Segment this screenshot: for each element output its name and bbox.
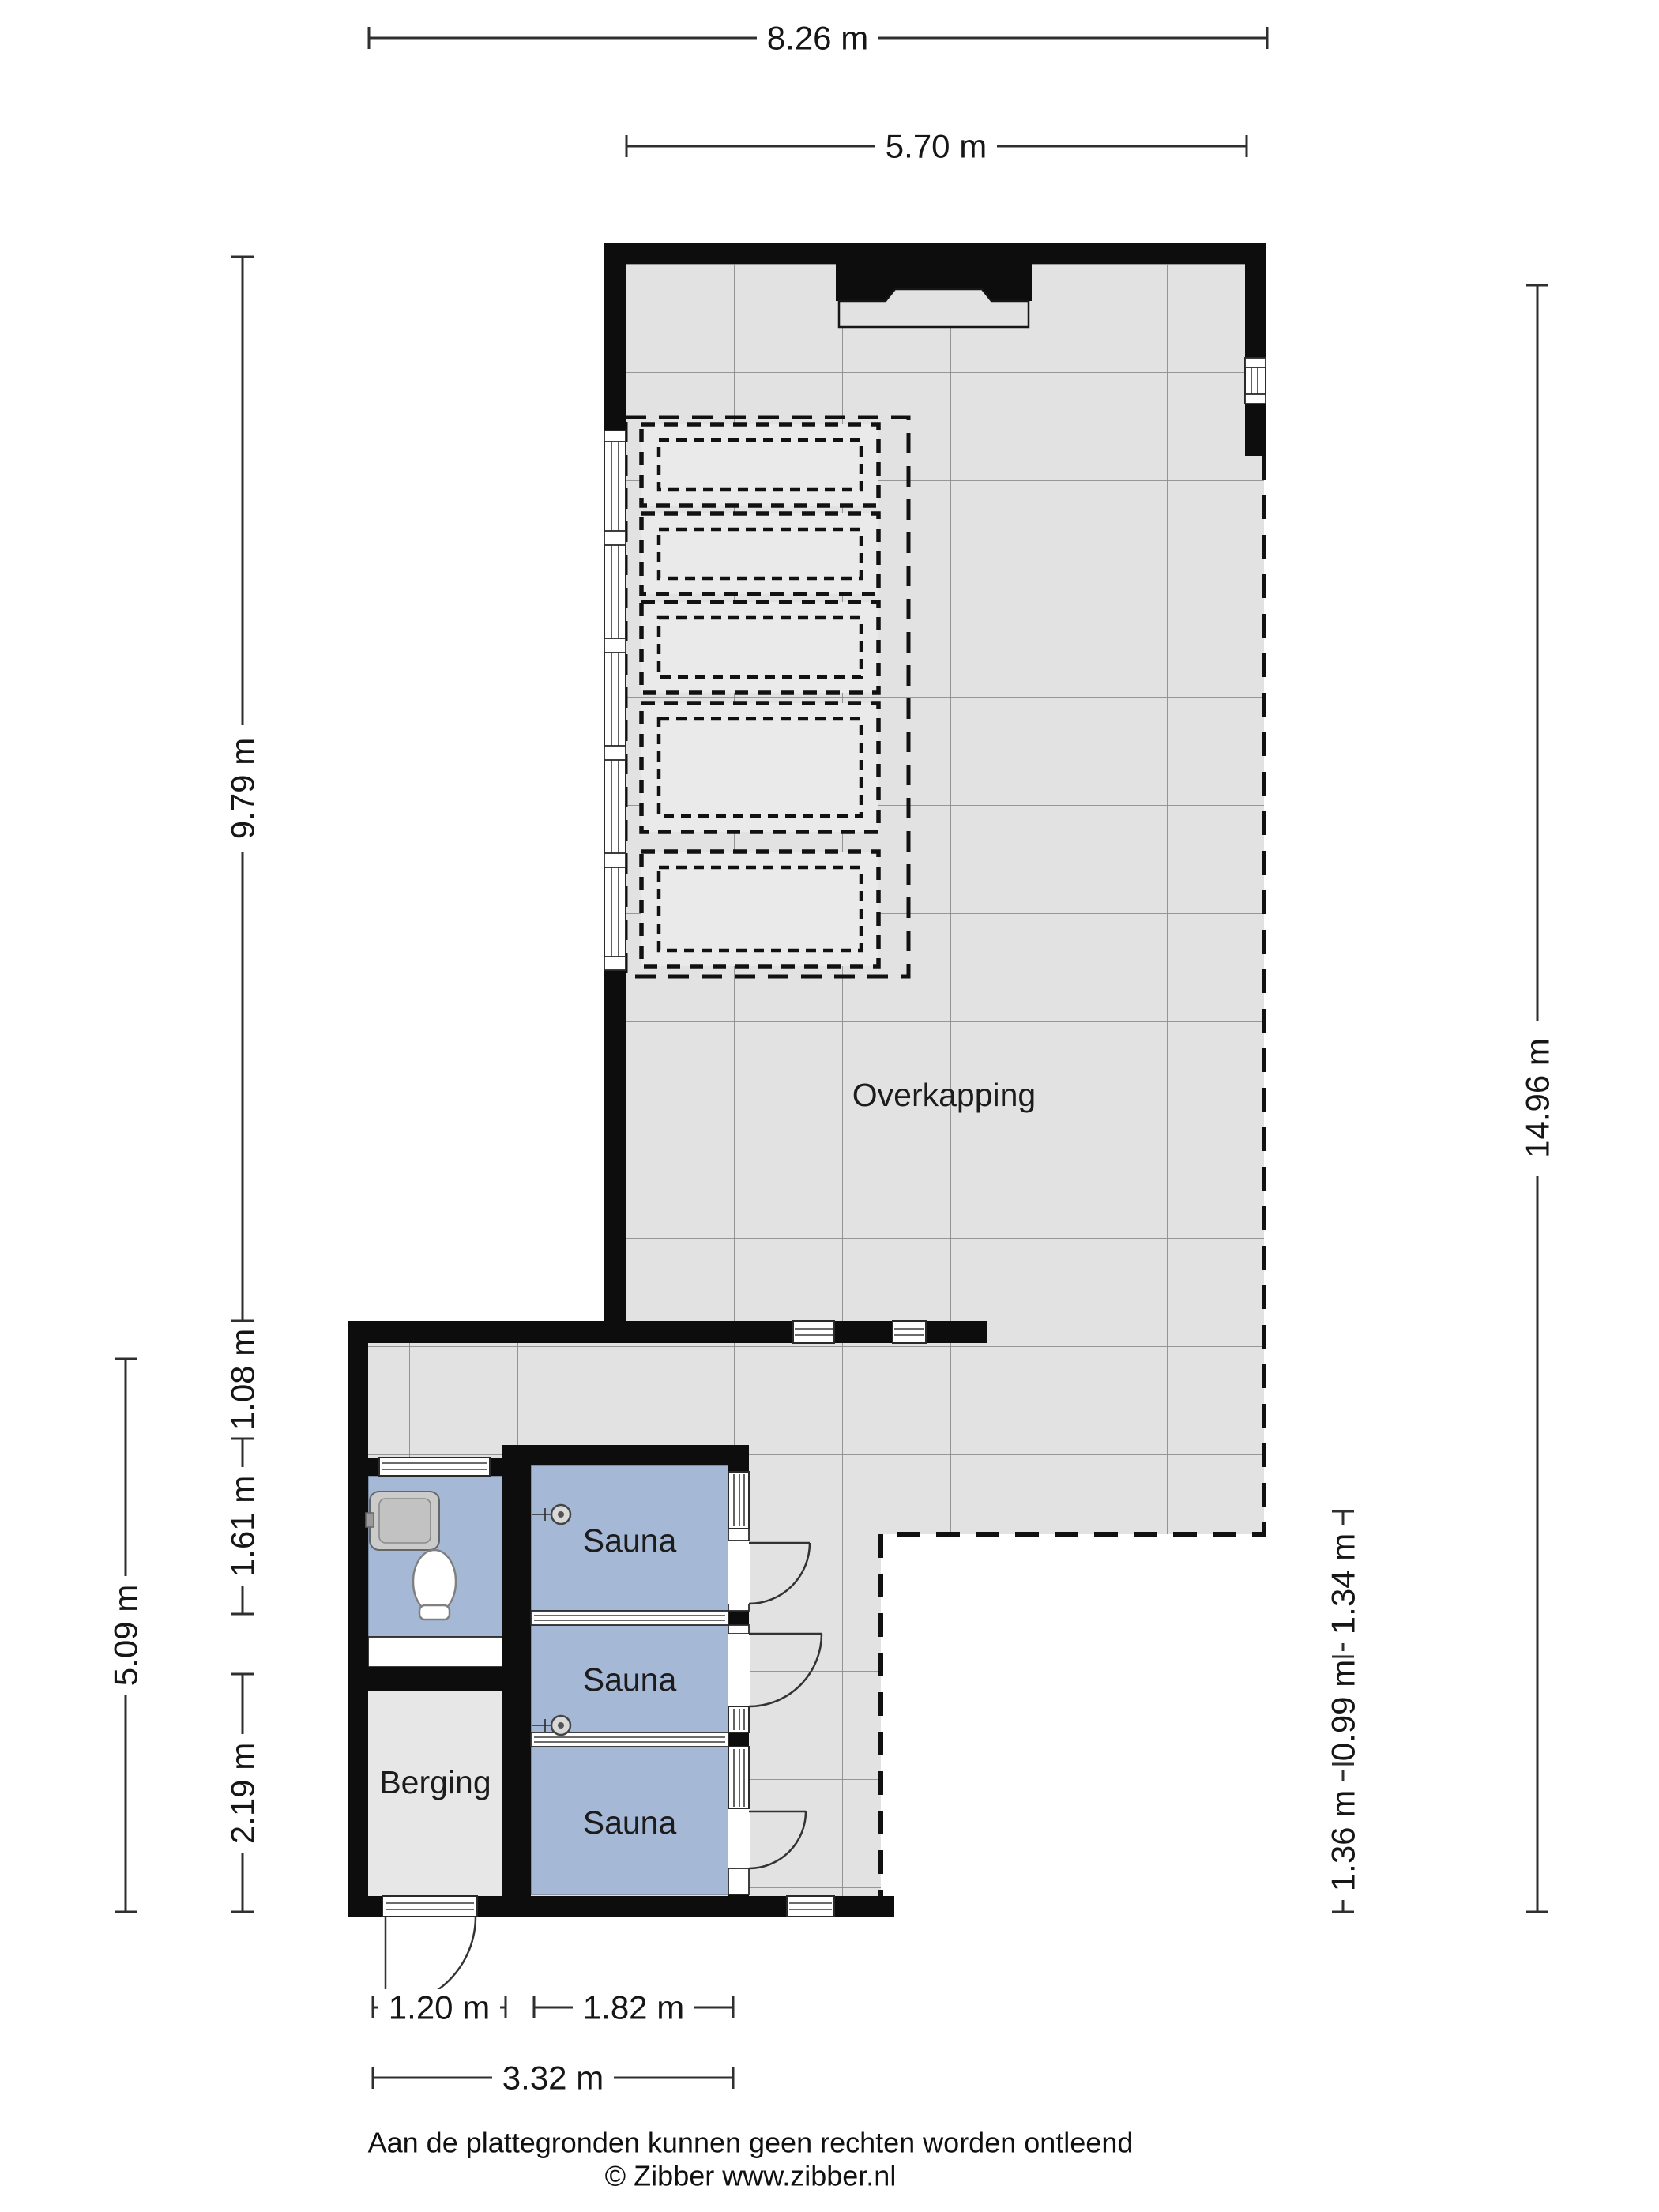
- dim-label-left-annex-top: 1.08 m: [224, 1329, 261, 1430]
- toilet-icon: [413, 1550, 456, 1619]
- room-label-sauna-1: Sauna: [583, 1522, 677, 1559]
- dim-label-left-toilet: 1.61 m: [224, 1476, 261, 1577]
- floorplan-page: 8.26 m 5.70 m 9.79 m 1.08 m 1.61 m 2.19 …: [0, 0, 1659, 2212]
- floorplan-drawing: 8.26 m 5.70 m 9.79 m 1.08 m 1.61 m 2.19 …: [0, 0, 1659, 2212]
- dim-label-top-overkapping: 5.70 m: [886, 128, 987, 165]
- dim-label-top-total: 8.26 m: [767, 20, 868, 57]
- dim-label-bottom-sauna: 1.82 m: [583, 1989, 684, 2026]
- dim-label-left-berging: 2.19 m: [224, 1743, 261, 1844]
- dim-label-right-sauna-2: 0.99 m: [1325, 1660, 1362, 1761]
- canopy-panel-4: [641, 703, 878, 832]
- footer: Aan de plattegronden kunnen geen rechten…: [368, 2127, 1134, 2192]
- dim-label-bottom-annex-total: 3.32 m: [502, 2060, 604, 2097]
- dim-label-left-overkapping: 9.79 m: [224, 738, 261, 839]
- wall-annex-left: [348, 1321, 368, 1917]
- room-label-berging: Berging: [379, 1764, 491, 1800]
- footer-copyright: © Zibber www.zibber.nl: [605, 2160, 897, 2192]
- dim-label-right-sauna-1: 1.34 m: [1325, 1533, 1362, 1635]
- window-overkapping-south-2: [893, 1321, 926, 1343]
- canopy-panel-5: [641, 852, 878, 966]
- canopy-panel-3: [641, 602, 878, 693]
- window-annex-south: [787, 1896, 834, 1917]
- canopy-panel-2: [641, 513, 878, 594]
- corridor-floor-tiles: [749, 1534, 881, 1896]
- wall-sauna-left: [502, 1445, 531, 1917]
- wall-left-lower: [604, 970, 626, 1343]
- wall-left-upper: [604, 243, 626, 431]
- window-right-wall: [1245, 358, 1266, 404]
- room-label-sauna-3: Sauna: [583, 1804, 677, 1841]
- dim-label-right-total: 14.96 m: [1519, 1038, 1556, 1158]
- wall-right: [1245, 243, 1266, 456]
- washbasin-icon: [366, 1492, 439, 1550]
- room-label-sauna-2: Sauna: [583, 1661, 677, 1698]
- window-toilet: [379, 1458, 490, 1476]
- dim-label-left-annex-total: 5.09 m: [107, 1585, 145, 1686]
- canopy-panel-1: [641, 424, 878, 506]
- wall-top: [604, 243, 1266, 264]
- dim-label-bottom-berging: 1.20 m: [389, 1989, 490, 2026]
- wall-sauna-top: [502, 1445, 749, 1465]
- footer-disclaimer: Aan de plattegronden kunnen geen rechten…: [368, 2127, 1134, 2159]
- wall-annex-top: [348, 1321, 987, 1343]
- window-overkapping-south-1: [793, 1321, 834, 1343]
- sauna-divider-1: [531, 1611, 728, 1625]
- dim-label-right-sauna-3: 1.36 m: [1325, 1790, 1362, 1891]
- toilet-room-opening: [368, 1637, 502, 1667]
- window-left-facade: [604, 431, 626, 970]
- room-label-overkapping: Overkapping: [852, 1077, 1036, 1113]
